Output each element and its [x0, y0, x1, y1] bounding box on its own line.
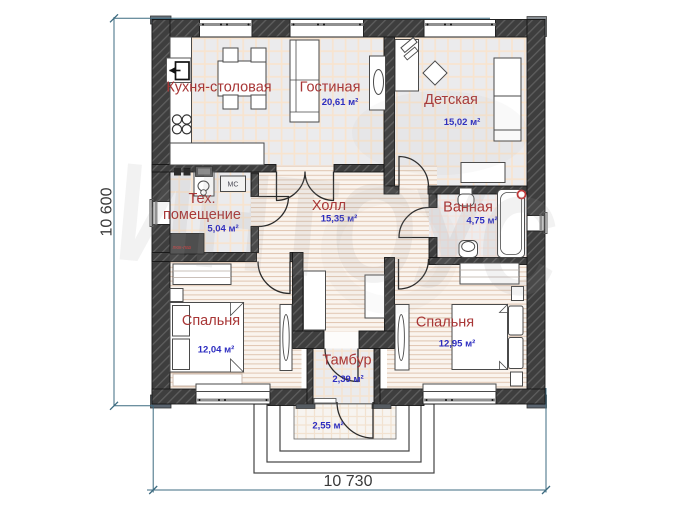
svg-text:2,55 м²: 2,55 м² [312, 421, 343, 432]
svg-text:2,39 м²: 2,39 м² [332, 374, 363, 385]
svg-text:10 730: 10 730 [324, 473, 373, 490]
svg-text:Гостиная: Гостиная [300, 80, 361, 96]
svg-text:10 600: 10 600 [99, 187, 116, 236]
svg-text:12,04 м²: 12,04 м² [198, 345, 235, 356]
svg-text:Кухня-столовая: Кухня-столовая [166, 80, 271, 96]
svg-text:Тамбур: Тамбур [322, 353, 371, 369]
svg-text:20,61 м²: 20,61 м² [322, 97, 359, 108]
svg-text:Спальня: Спальня [182, 313, 240, 329]
svg-text:12,95 м²: 12,95 м² [439, 339, 476, 350]
